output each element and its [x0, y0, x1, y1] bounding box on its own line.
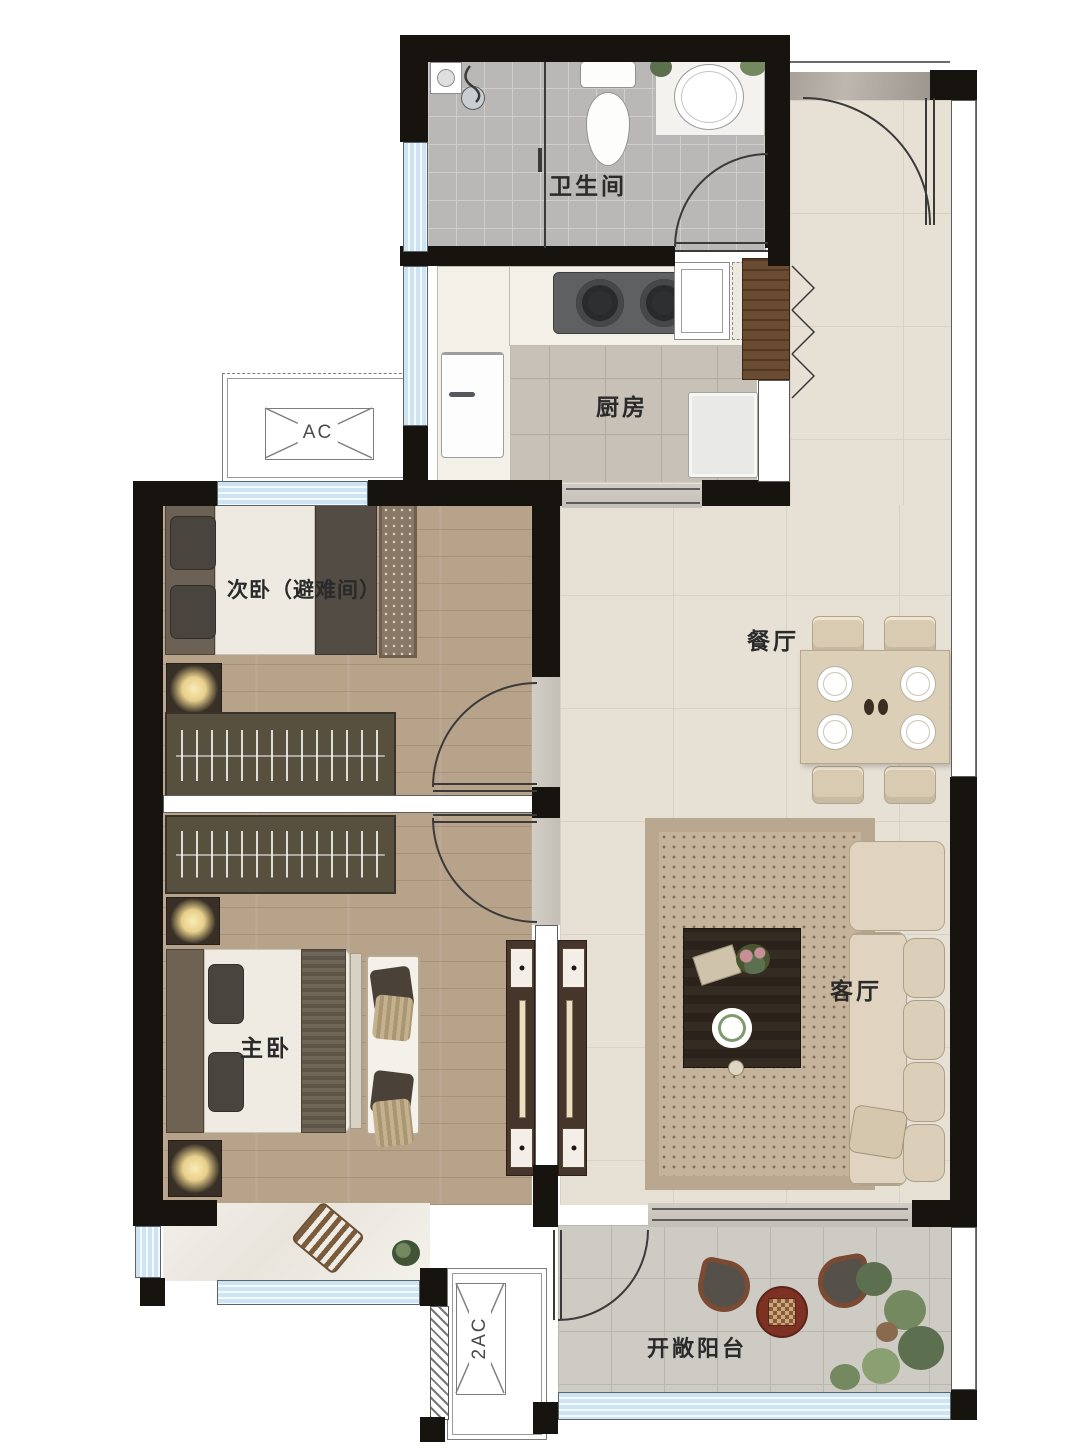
- wall-kitchen-entry: [758, 380, 790, 482]
- master-bed-pillow: [208, 1052, 244, 1112]
- window-secondary-bedroom: [217, 481, 368, 506]
- bench-cushion-tan: [372, 1098, 415, 1148]
- kitchen-threshold: [562, 484, 702, 508]
- sofa-back-cushion: [903, 938, 945, 998]
- wall-between-doors: [532, 787, 560, 818]
- entry-hall-floor: [790, 100, 951, 505]
- wall-left-bay-block: [140, 1278, 165, 1306]
- wall-2ac-bottom-block: [420, 1417, 445, 1442]
- sofa-chaise: [849, 841, 945, 931]
- kitchen-faucet: [449, 392, 475, 397]
- fridge: [688, 392, 758, 478]
- hatched-wall: [430, 1306, 449, 1420]
- dinner-plate: [900, 666, 936, 702]
- window-bathroom-left: [403, 142, 428, 252]
- label-secondary-bedroom: 次卧（避难间）: [227, 574, 381, 604]
- dining-chair: [812, 766, 864, 804]
- balcony-table-checkerboard: [768, 1298, 796, 1326]
- dinner-plate: [817, 666, 853, 702]
- master-wardrobe: [165, 815, 396, 894]
- dinner-plate: [900, 714, 936, 750]
- bench-cushion-tan: [372, 994, 414, 1042]
- sofa-back-cushion: [903, 1124, 945, 1182]
- window-balcony-right: [951, 1227, 977, 1390]
- coffee-table-cup: [728, 1060, 744, 1076]
- window-left-bay: [135, 1226, 161, 1278]
- wall-right-outer: [950, 777, 977, 1213]
- balcony-plant-pot: [876, 1322, 898, 1342]
- secondary-bed-pillow: [170, 516, 216, 570]
- wall-bathroom-bottom: [400, 246, 675, 266]
- master-bedside-lamp-top: [166, 897, 220, 945]
- wall-living-bottom-left: [533, 1203, 558, 1227]
- label-bathroom: 卫生间: [549, 167, 627, 201]
- kitchen-sink: [441, 352, 504, 458]
- wall-left-outer: [133, 481, 163, 1208]
- label-balcony: 开敞阳台: [647, 1331, 747, 1363]
- secondary-bedside-lamp: [166, 663, 222, 715]
- dining-chair: [884, 616, 936, 654]
- balcony-plant: [830, 1364, 860, 1390]
- window-kitchen-left: [403, 266, 428, 426]
- label-ac-lower: 2AC: [469, 1312, 491, 1365]
- wall-bathroom-top: [400, 35, 790, 62]
- label-ac-upper: AC: [298, 422, 338, 444]
- floor-plan: 卫生间 厨房 次卧（避难间） 餐厅 客厅 主卧 开敞阳台 AC 2AC: [0, 0, 1080, 1450]
- tv-cabinet-endcap: [510, 948, 533, 988]
- wall-bedroom-dining-upper: [532, 483, 560, 677]
- label-living-room: 客厅: [830, 972, 882, 1006]
- entry-shoe-cabinet: [742, 258, 790, 380]
- master-bed-headboard: [166, 949, 204, 1133]
- tv-cabinet-endcap: [562, 948, 585, 988]
- wall-balcony-top-right: [912, 1200, 977, 1227]
- master-bed-footrail: [350, 953, 362, 1129]
- wall-entry-top-corner: [930, 70, 977, 100]
- wall-kitchen-bottom-right: [702, 480, 790, 506]
- dinner-plate: [817, 714, 853, 750]
- secondary-wardrobe: [165, 712, 396, 799]
- tv-partition-wall: [535, 925, 558, 1170]
- stove-burner-left: [576, 279, 624, 327]
- bay-plant: [392, 1240, 420, 1266]
- secondary-bed-pillow: [170, 585, 216, 639]
- coffee-table-flowers: [736, 944, 770, 974]
- wall-left-bottom-corner: [133, 1200, 217, 1226]
- tv-screen-living: [566, 1000, 573, 1118]
- tv-cabinet-endcap: [562, 1128, 585, 1168]
- master-bed-runner: [301, 949, 346, 1133]
- coffee-table-plate: [712, 1008, 752, 1048]
- master-door-threshold: [532, 818, 560, 925]
- sofa-back-cushion: [903, 1000, 945, 1060]
- wall-balcony-bottom-right-block: [951, 1390, 977, 1420]
- wall-bathroom-left-upper: [400, 35, 428, 142]
- shower-head: [461, 86, 485, 110]
- table-centerpiece: [878, 699, 888, 715]
- window-balcony-railing: [558, 1392, 951, 1420]
- tv-cabinet-endcap: [510, 1128, 533, 1168]
- vanity-basin: [674, 64, 744, 130]
- kitchen-basin-box: [674, 262, 730, 340]
- window-master-bay: [217, 1280, 420, 1305]
- secondary-bedside-rug: [379, 503, 417, 658]
- shower-drain: [437, 69, 455, 87]
- master-bed-pillow: [208, 964, 244, 1024]
- table-centerpiece: [864, 699, 874, 715]
- balcony-plant: [862, 1348, 900, 1384]
- balcony-plant: [898, 1326, 944, 1370]
- tv-screen-master: [519, 1000, 526, 1118]
- entry-marble-band: [790, 72, 930, 100]
- dining-chair: [812, 616, 864, 654]
- wall-bathroom-bottom-right: [768, 246, 790, 266]
- label-dining-room: 餐厅: [747, 622, 799, 656]
- label-kitchen: 厨房: [596, 388, 648, 422]
- wall-below-tv: [533, 1165, 558, 1205]
- dining-chair: [884, 766, 936, 804]
- wall-bay-right-block: [420, 1268, 447, 1306]
- secondary-door-threshold: [532, 677, 560, 787]
- label-master-bedroom: 主卧: [240, 1029, 292, 1063]
- wall-bathroom-right: [765, 35, 790, 248]
- bedroom-partition-wall: [163, 795, 533, 813]
- wall-kitchen-left-bottom: [403, 426, 428, 482]
- sofa-back-cushion: [903, 1062, 945, 1122]
- master-bedside-lamp-bottom: [168, 1140, 222, 1197]
- sofa-throw-pillow: [848, 1104, 909, 1160]
- toilet-tank: [580, 61, 636, 88]
- balcony-plant: [856, 1262, 892, 1296]
- window-right-floor-to-ceiling: [951, 100, 977, 777]
- balcony-threshold: [648, 1203, 912, 1227]
- wall-balcony-bottom-left-block: [533, 1402, 558, 1434]
